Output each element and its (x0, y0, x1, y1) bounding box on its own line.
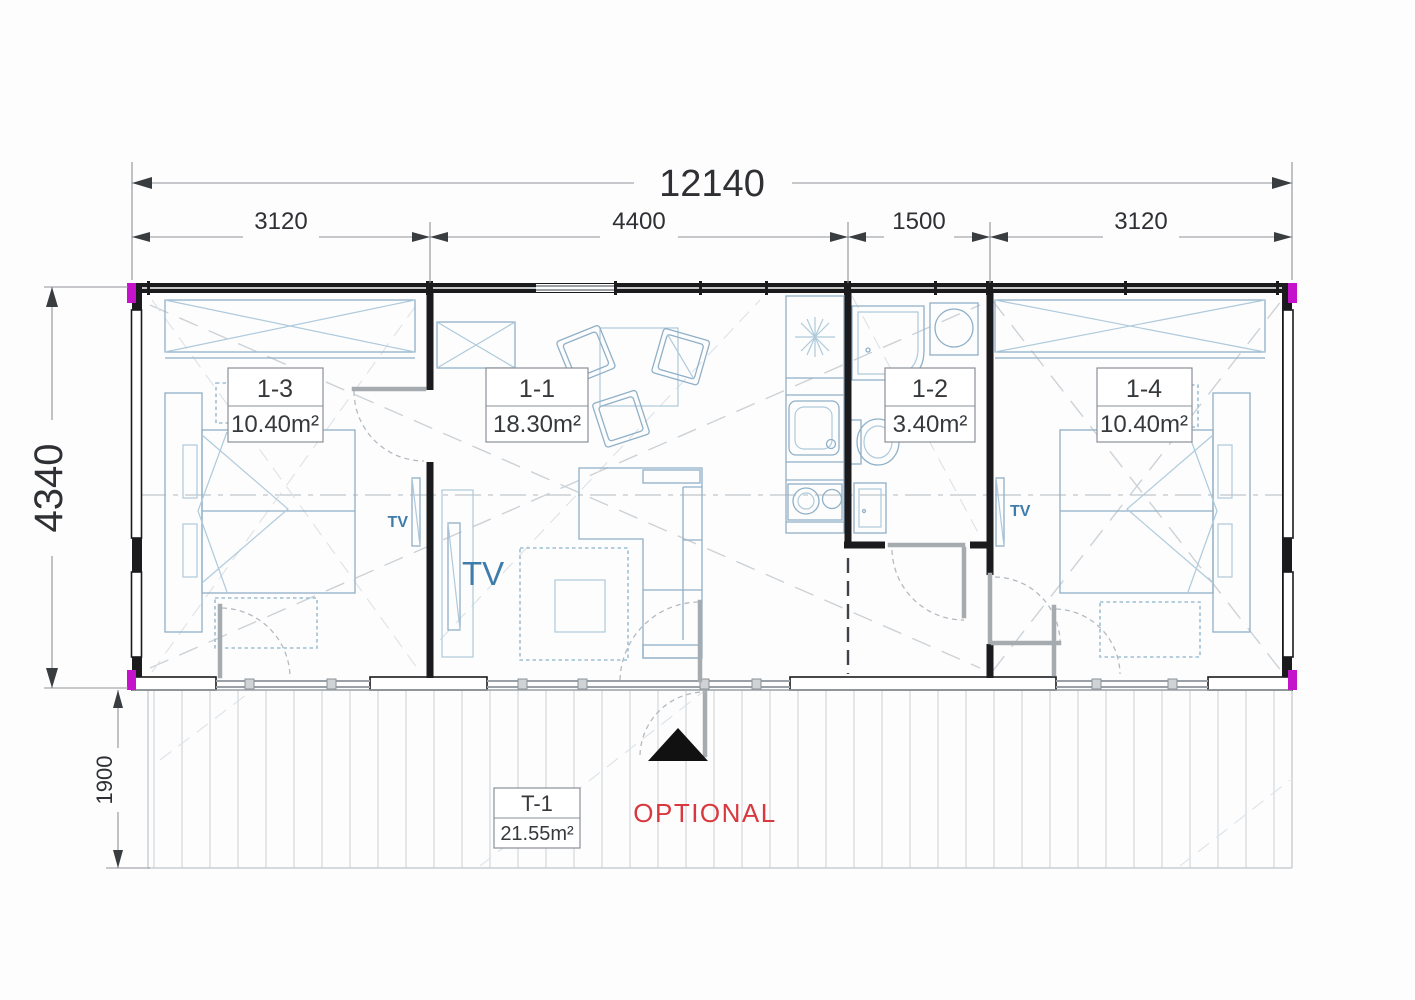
dim-segment-4: 3120 (1114, 208, 1167, 235)
room-label-1-3: 1-3 10.40m² (228, 368, 323, 442)
kitchen-counter (786, 296, 844, 533)
room-area: 21.55m² (500, 823, 574, 845)
room-area: 10.40m² (231, 411, 319, 438)
dim-overall-depth: 4340 (27, 444, 71, 533)
corner-marker (127, 670, 136, 690)
corner-marker (1288, 670, 1297, 690)
room-id: 1-1 (519, 375, 555, 403)
rug (215, 598, 317, 648)
bedroom-left-door (354, 389, 424, 461)
bedroom-left-terrace-door (220, 606, 290, 676)
floor-plan-drawing: 1-3 10.40m² 1-1 18.30m² 1-2 3.40m² 1-4 1… (0, 0, 1415, 1000)
room-area: 10.40m² (1100, 411, 1188, 438)
coffee-table (555, 580, 605, 632)
tv-panel (996, 478, 1004, 546)
bathroom-door (890, 545, 964, 620)
bedroom-right-door (990, 575, 1060, 643)
room-label-1-4: 1-4 10.40m² (1097, 368, 1192, 442)
rug (520, 548, 628, 660)
room-label-1-2: 1-2 3.40m² (885, 368, 975, 442)
dim-segment-2: 4400 (612, 208, 665, 235)
walls (127, 281, 1297, 690)
room-id: T-1 (521, 791, 553, 816)
corner-marker (1288, 283, 1297, 303)
room-label-1-1: 1-1 18.30m² (486, 368, 588, 442)
room-id: 1-4 (1126, 375, 1162, 403)
floor-plan-page: 1-3 10.40m² 1-1 18.30m² 1-2 3.40m² 1-4 1… (0, 0, 1415, 1000)
terrace (148, 690, 1292, 868)
bedroom-right-furniture (995, 300, 1265, 657)
tv-label-bedroom-left: TV (388, 514, 409, 531)
dimension-top: 12140 3120 4400 1500 3120 (132, 162, 1292, 283)
bedroom-left-furniture (165, 300, 420, 648)
bottom-wall-segments (132, 677, 1292, 690)
room-area: 18.30m² (493, 411, 581, 438)
hob-symbol (795, 317, 835, 357)
sofa (579, 468, 702, 658)
dim-terrace-depth: 1900 (92, 756, 117, 805)
tv-label-living: TV (462, 555, 504, 592)
tv-label-bedroom-right: TV (1010, 503, 1031, 520)
bottom-wall-glazing (216, 679, 1208, 689)
kitchen-sink (789, 401, 839, 455)
terrace-label: T-1 21.55m² (494, 788, 580, 848)
dim-segment-1: 3120 (254, 208, 307, 235)
optional-label: OPTIONAL (633, 798, 776, 828)
bathroom-sink (930, 303, 978, 355)
room-area: 3.40m² (893, 411, 968, 438)
cooktop (788, 484, 842, 520)
room-id: 1-3 (257, 375, 293, 403)
bedroom-right-terrace-door (1054, 607, 1120, 674)
corner-marker (127, 283, 136, 303)
dim-segment-3: 1500 (892, 208, 945, 235)
dim-overall-width: 12140 (659, 163, 765, 205)
tv-panel (412, 478, 420, 546)
bathroom-cabinet (854, 483, 886, 533)
room-id: 1-2 (912, 375, 948, 403)
